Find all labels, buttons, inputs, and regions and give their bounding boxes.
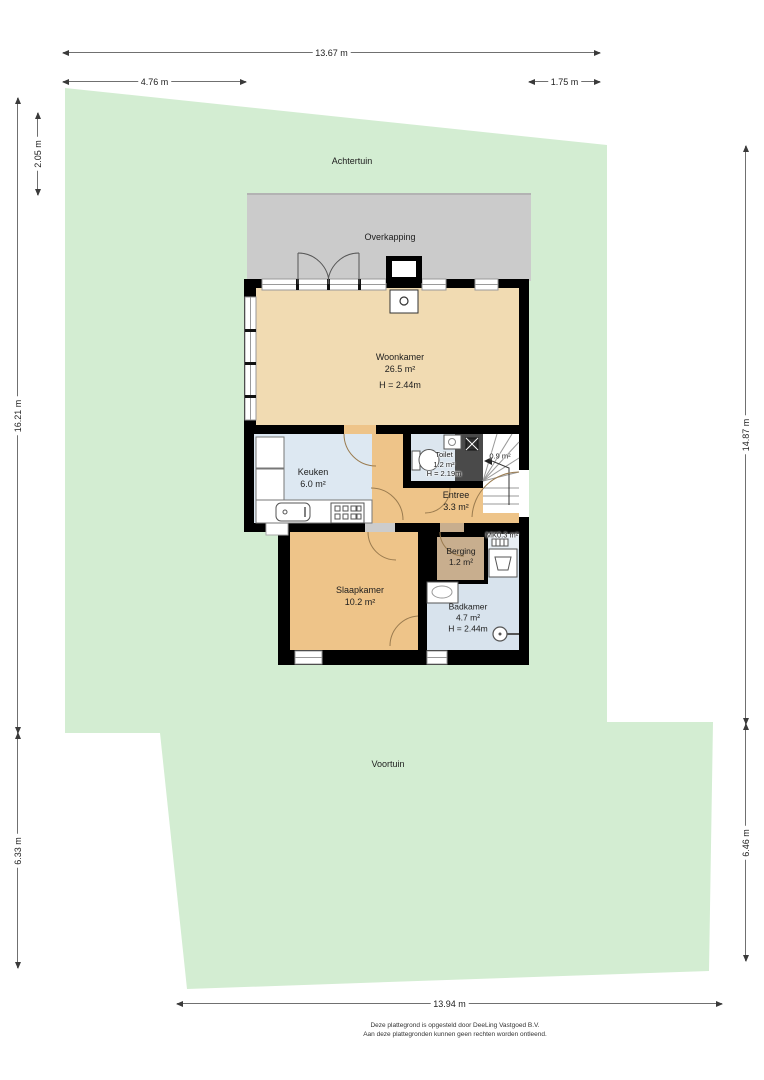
shower-drain (499, 633, 502, 636)
floorplan-drawing (0, 0, 764, 1080)
canopy-beam (247, 193, 531, 195)
opening-woonkamer-hall (344, 425, 376, 434)
dimension-left-inner: 2.05 m (37, 113, 38, 195)
woonkamer-label: Woonkamer 26.5 m² H = 2.44m (376, 351, 424, 391)
disclaimer: Deze plattegrond is opgesteld door DeeLi… (363, 1021, 547, 1039)
dimension-left-lower: 6.33 m (17, 733, 18, 968)
canopy-label: Overkapping (364, 231, 415, 243)
washing-machine-icon (489, 549, 517, 577)
toilet-label: Toilet 1.2 m² H = 2.19m (427, 450, 462, 479)
slaapkamer-label: Slaapkamer 10.2 m² (336, 584, 384, 608)
dimension-top-total: 13.67 m (63, 52, 600, 53)
dimension-top-right: 1.75 m (529, 81, 600, 82)
hand-basin-icon (444, 435, 461, 449)
opening-berging-door (440, 523, 464, 532)
dimension-right-lower: 6.46 m (745, 724, 746, 961)
disclaimer-line2: Aan deze plattegronden kunnen geen recht… (363, 1030, 547, 1039)
dimension-left-upper: 16.21 m (17, 98, 18, 733)
dimension-top-left: 4.76 m (63, 81, 246, 82)
back-garden-label: Achtertuin (332, 155, 373, 167)
keuken-label: Keuken 6.0 m² (298, 466, 329, 490)
entree-label: Entree 3.3 m² (443, 489, 470, 513)
window-mullion (245, 329, 256, 332)
mk-label: MK0.3 m² (486, 530, 519, 540)
kitchen-cabinet-icon (256, 469, 284, 501)
front-garden-label: Voortuin (371, 758, 404, 770)
room-hall (372, 434, 403, 523)
chimney-inner (392, 261, 416, 277)
kitchen-cabinet-icon (256, 437, 284, 468)
badkamer-label: Badkamer 4.7 m² H = 2.44m (448, 602, 487, 635)
window-mullion (245, 395, 256, 398)
dimension-bottom: 13.94 m (177, 1003, 722, 1004)
berging-label: Berging 1.2 m² (446, 546, 475, 568)
flue-icon (400, 297, 408, 305)
dimension-right-upper: 14.87 m (745, 146, 746, 724)
opening-front-door (519, 470, 529, 517)
trap-label: 0.9 m² (489, 451, 510, 461)
floorplan-page: Achtertuin Overkapping Voortuin Woonkame… (0, 0, 764, 1080)
window-mullion (245, 362, 256, 365)
disclaimer-line1: Deze plattegrond is opgesteld door DeeLi… (363, 1021, 547, 1030)
opening-slaapkamer-door (365, 523, 395, 532)
